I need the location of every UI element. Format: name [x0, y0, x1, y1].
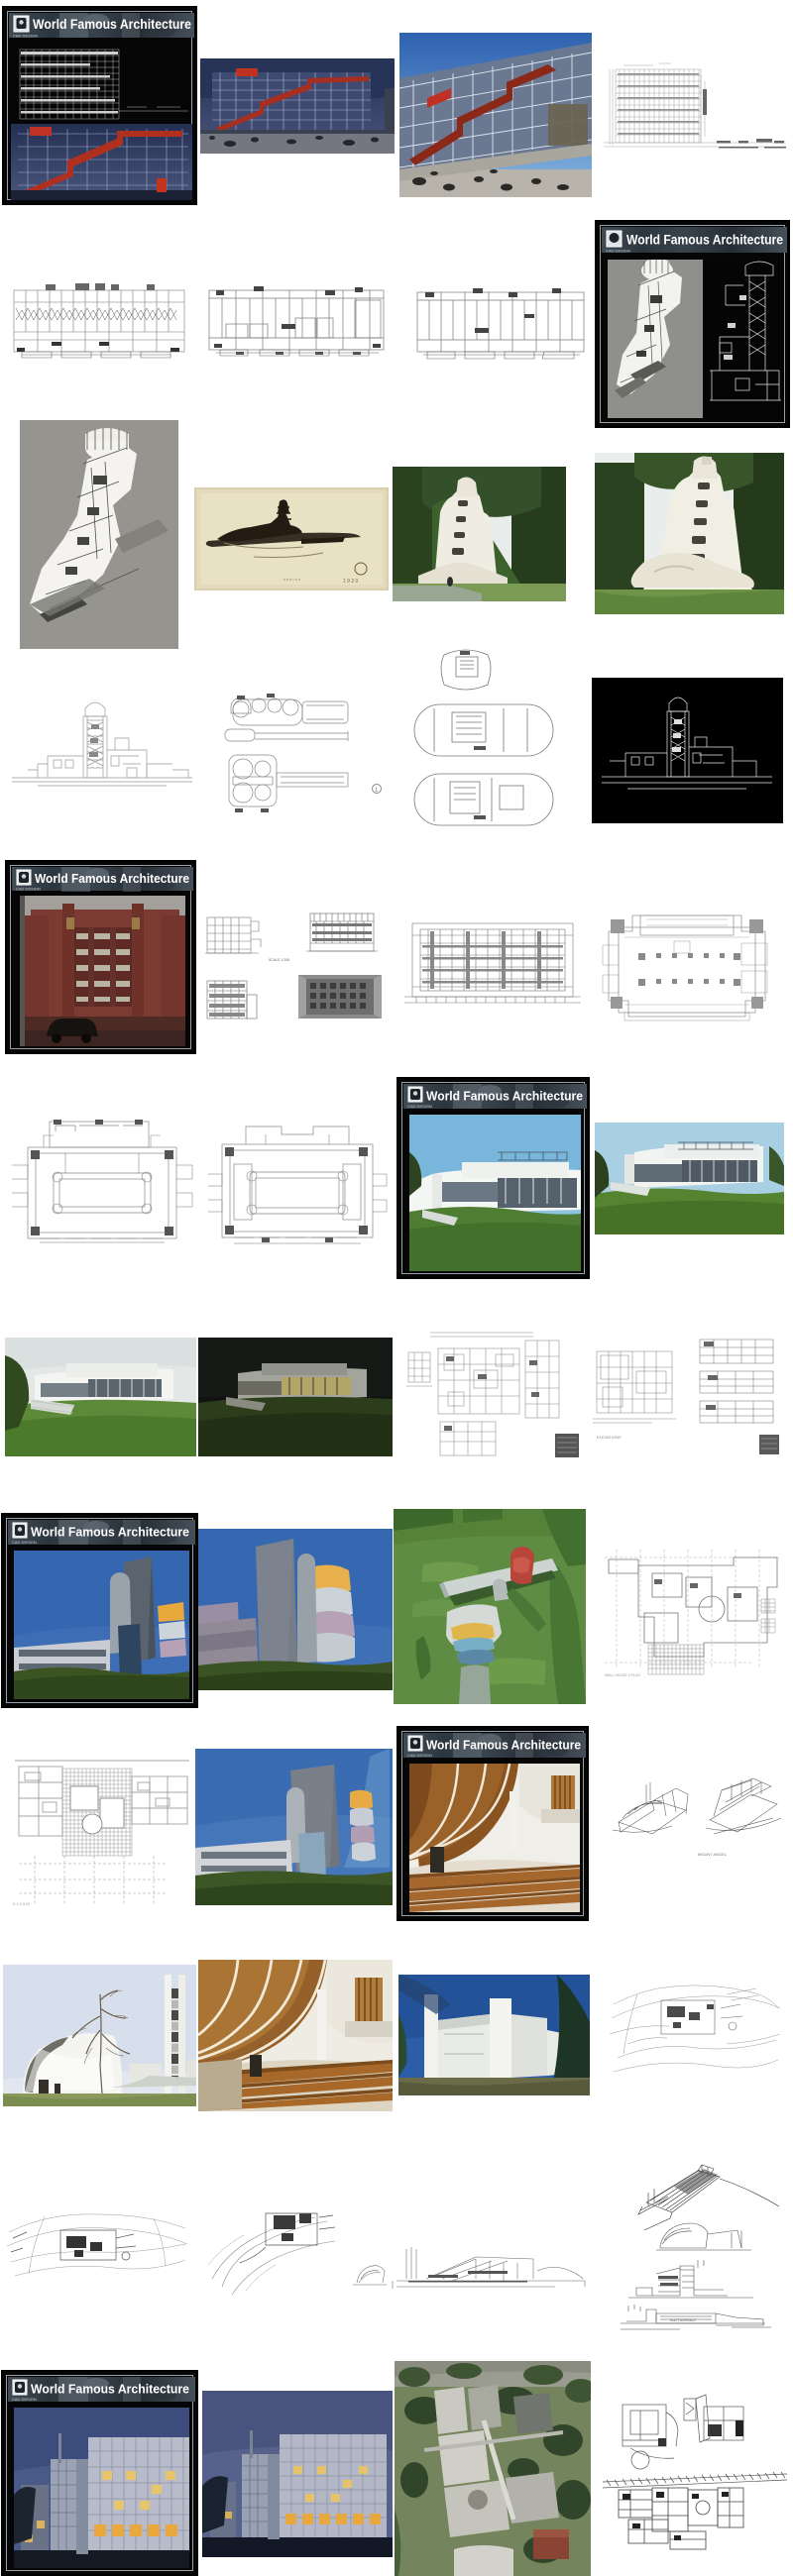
svg-text:1 9 2 0: 1 9 2 0 [343, 579, 359, 585]
svg-text:ELEVATIONS: ELEVATIONS [597, 1435, 622, 1440]
svg-text:World Famous Architecture: World Famous Architecture [33, 17, 191, 32]
svg-text:CAD DESIGN: CAD DESIGN [407, 1104, 432, 1109]
svg-text:World Famous Architecture: World Famous Architecture [35, 871, 189, 886]
svg-text:SCALE 1:200: SCALE 1:200 [269, 958, 289, 962]
svg-text:World Famous Architecture: World Famous Architecture [626, 233, 783, 248]
svg-text:CAD DESIGN: CAD DESIGN [606, 249, 630, 254]
svg-text:CAD DESIGN: CAD DESIGN [16, 887, 41, 892]
svg-text:0 1 2 5 M: 0 1 2 5 M [13, 1901, 30, 1906]
svg-text:WALL HOUSE II PLAN: WALL HOUSE II PLAN [605, 1673, 640, 1677]
svg-text:CAD DESIGN: CAD DESIGN [13, 34, 38, 39]
svg-text:KULTTUURITALO: KULTTUURITALO [670, 2318, 696, 2322]
svg-text:MOUNT ANGEL: MOUNT ANGEL [698, 1852, 728, 1857]
svg-text:World Famous Architecture: World Famous Architecture [31, 2382, 189, 2397]
svg-text:World Famous Architecture: World Famous Architecture [426, 1089, 583, 1104]
svg-text:CAD DESIGN: CAD DESIGN [407, 1753, 432, 1758]
svg-text:s k e t c h: s k e t c h [283, 577, 300, 582]
svg-text:World Famous Architecture: World Famous Architecture [426, 1738, 581, 1753]
svg-text:CAD DESIGN: CAD DESIGN [12, 2397, 37, 2402]
svg-text:World Famous Architecture: World Famous Architecture [31, 1525, 189, 1540]
svg-text:CAD DESIGN: CAD DESIGN [12, 1540, 37, 1545]
